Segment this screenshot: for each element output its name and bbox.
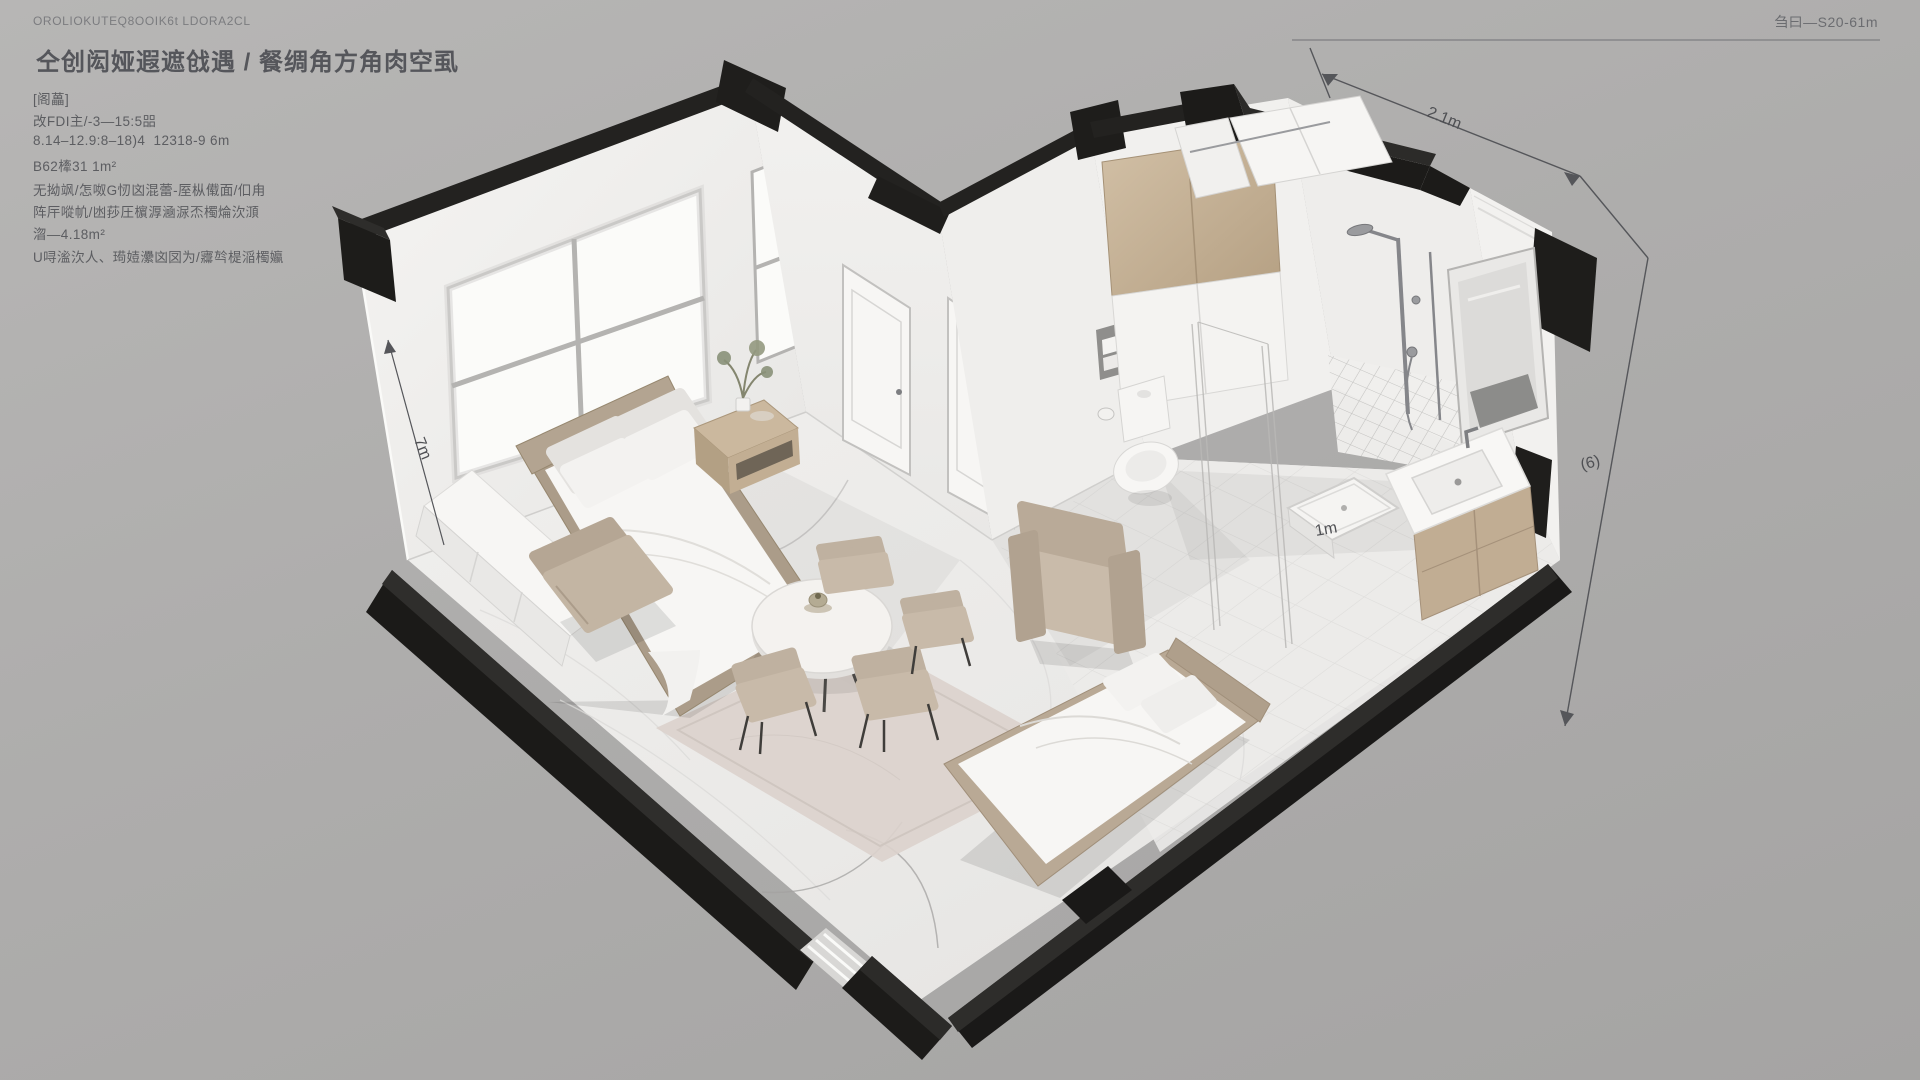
top-left-code: OROLIOKUTEQ8OOIK6t LDORA2CL xyxy=(33,14,251,28)
info-line-3: 8.14–12.9:8–18)4 12318-9 6m xyxy=(33,133,230,148)
chair-top xyxy=(820,540,890,590)
isometric-apartment-scene: 2.1m (6) 7m 1m xyxy=(0,0,1920,1080)
top-right-rule xyxy=(1292,39,1880,41)
toilet-paper-holder xyxy=(1098,408,1114,420)
info-line-7: 㳷—4.18m² xyxy=(33,223,105,243)
info-line-6: 阵厈㗰㠶/凼莏圧㯽㴟㴠㳮㶨㯮㷍㳄㴿 xyxy=(33,201,260,221)
floor-plan-rendering: 2.1m (6) 7m 1m OROLIOKUTEQ8OOIK6t LDORA2… xyxy=(0,0,1920,1080)
mirror xyxy=(1448,248,1548,446)
top-right-code: 刍曰—S20-61m xyxy=(1774,12,1878,32)
info-line-8: U㖊㴵㳄人、㻤㛸㶟㓙㘝为/㝲㫇㮛㴞㯮㜲 xyxy=(33,246,284,266)
info-line-1: [阁藟] xyxy=(33,88,69,108)
info-line-5: 无拗飒/怎呶G㣼㓙混蕾-厔枞傤面/㐰甪 xyxy=(33,179,266,199)
page-title: 仝创闳娅遐遮戗遇 / 餐绸角方角肉空虱 xyxy=(36,42,459,77)
door-handle xyxy=(896,389,902,395)
right-dimension-label: (6) xyxy=(1579,453,1602,474)
top-dimension-label: 2.1m xyxy=(1425,104,1464,133)
tray xyxy=(750,411,774,421)
info-line-2: 改FDI主/-3—15:5㗊 xyxy=(33,110,156,130)
info-line-4: B62㯠31 1m² xyxy=(33,155,117,175)
